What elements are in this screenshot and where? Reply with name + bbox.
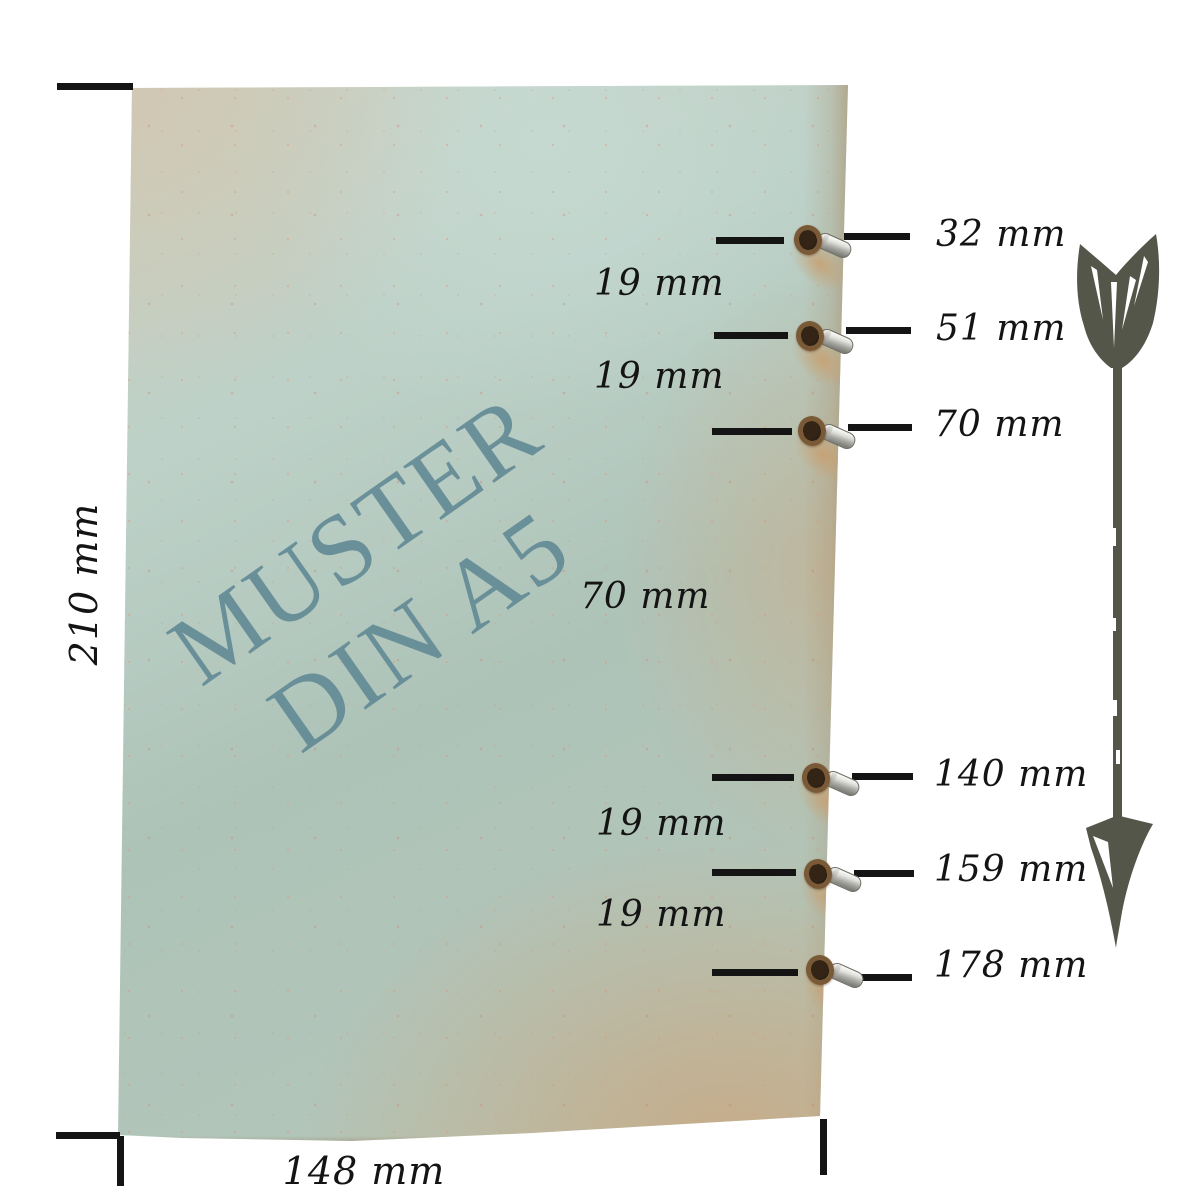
- spacing-label-5: 19 mm: [596, 897, 727, 933]
- measurement-line-left-5: [712, 869, 796, 876]
- dimension-tick-top-left: [57, 83, 133, 90]
- down-arrow-icon: [1056, 230, 1180, 960]
- spacing-label-4: 19 mm: [596, 806, 727, 842]
- measurement-line-left-3: [712, 428, 792, 435]
- dimension-tick-bottom-left-h: [56, 1132, 120, 1139]
- measurement-line-left-6: [712, 969, 798, 976]
- spacing-label-1: 19 mm: [594, 266, 725, 302]
- measurement-line-right-1: [844, 233, 910, 240]
- measurement-line-right-3: [848, 424, 912, 431]
- hole-distance-label-1: 32 mm: [936, 217, 1067, 253]
- spacing-label-2: 19 mm: [594, 359, 725, 395]
- measurement-line-left-1: [716, 237, 784, 244]
- din-a5-hole-diagram: MUSTER DIN A5 32 mm 51 mm 70 mm 140 mm 1…: [0, 0, 1200, 1200]
- height-dimension-label: 210 mm: [65, 484, 103, 684]
- spacing-label-3: 70 mm: [580, 579, 711, 615]
- measurement-line-right-5: [854, 870, 914, 877]
- measurement-line-right-2: [846, 327, 911, 334]
- dimension-tick-bottom-right-v: [820, 1119, 827, 1175]
- hole-distance-label-2: 51 mm: [936, 311, 1067, 347]
- measurement-line-left-2: [714, 332, 788, 339]
- width-dimension-label: 148 mm: [254, 1152, 474, 1190]
- dimension-tick-bottom-left-v: [117, 1136, 124, 1186]
- measurement-line-right-4: [852, 773, 913, 780]
- measurement-line-left-4: [712, 774, 794, 781]
- hole-distance-label-3: 70 mm: [934, 407, 1065, 443]
